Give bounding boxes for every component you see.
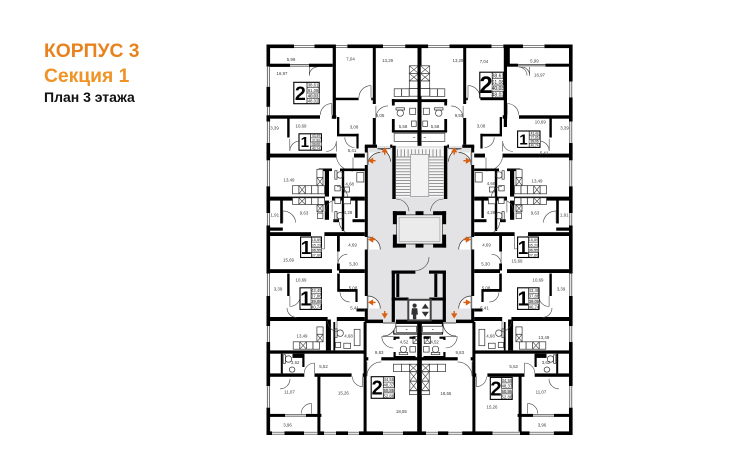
svg-text:1: 1 [518, 238, 529, 259]
svg-text:4,52: 4,52 [400, 339, 409, 344]
svg-text:10,69: 10,69 [533, 278, 545, 283]
svg-text:15,69: 15,69 [512, 259, 524, 264]
svg-text:15,26: 15,26 [338, 391, 350, 396]
svg-text:9,63: 9,63 [300, 211, 309, 216]
svg-text:10,69: 10,69 [535, 120, 547, 125]
svg-text:61,08: 61,08 [308, 88, 319, 93]
svg-text:9,63: 9,63 [531, 211, 540, 216]
svg-text:3,39: 3,39 [557, 287, 566, 292]
svg-text:13,49: 13,49 [284, 178, 296, 183]
svg-text:43,49: 43,49 [311, 288, 322, 293]
svg-text:37,60: 37,60 [528, 253, 539, 258]
svg-text:3,08: 3,08 [350, 125, 359, 130]
svg-text:39,06: 39,06 [529, 299, 540, 304]
svg-text:5,30: 5,30 [349, 262, 358, 267]
svg-text:1,91: 1,91 [560, 213, 569, 218]
svg-text:2: 2 [490, 378, 501, 400]
svg-text:5,99: 5,99 [530, 59, 539, 64]
svg-text:5,99: 5,99 [287, 57, 296, 62]
svg-text:40,74: 40,74 [531, 144, 539, 148]
svg-text:43,49: 43,49 [529, 288, 540, 293]
svg-text:9,55: 9,55 [455, 113, 464, 118]
svg-text:1: 1 [301, 134, 309, 151]
svg-text:7,04: 7,04 [346, 57, 355, 62]
svg-text:48,02: 48,02 [308, 99, 319, 104]
svg-text:50,86: 50,86 [384, 388, 395, 393]
svg-text:50,86: 50,86 [502, 389, 513, 394]
svg-text:37,60: 37,60 [311, 253, 322, 258]
svg-text:5,58: 5,58 [399, 124, 408, 129]
svg-text:13,49: 13,49 [532, 179, 544, 184]
svg-text:3,08: 3,08 [477, 124, 486, 129]
svg-text:40,03: 40,03 [492, 86, 505, 92]
svg-text:5,30: 5,30 [481, 262, 490, 267]
svg-text:37,86: 37,86 [529, 294, 540, 299]
svg-text:16,97: 16,97 [277, 71, 289, 76]
svg-text:13,49: 13,49 [297, 334, 309, 339]
svg-text:11,07: 11,07 [536, 390, 547, 395]
svg-text:3,62: 3,62 [291, 360, 300, 365]
svg-text:1: 1 [518, 289, 529, 311]
svg-text:2: 2 [372, 377, 383, 399]
svg-text:3,96: 3,96 [283, 423, 292, 428]
svg-text:4,28: 4,28 [344, 210, 353, 215]
svg-text:18,55: 18,55 [396, 409, 408, 414]
svg-text:10,69: 10,69 [296, 124, 308, 129]
svg-text:5,52: 5,52 [509, 364, 518, 369]
svg-text:1: 1 [301, 238, 312, 259]
svg-text:37,86: 37,86 [311, 294, 322, 299]
svg-text:КОРПУС 3: КОРПУС 3 [44, 41, 140, 62]
svg-text:4,28: 4,28 [487, 210, 496, 215]
svg-text:5,41: 5,41 [480, 306, 489, 311]
svg-text:3,39: 3,39 [270, 126, 279, 131]
svg-text:39,06: 39,06 [311, 299, 322, 304]
svg-text:48,37: 48,37 [384, 383, 395, 388]
svg-text:2: 2 [479, 73, 492, 99]
svg-text:15,26: 15,26 [487, 405, 499, 410]
svg-text:4,52: 4,52 [430, 339, 439, 344]
svg-text:4,68: 4,68 [345, 182, 354, 187]
svg-text:7,04: 7,04 [480, 59, 489, 64]
svg-text:13,49: 13,49 [538, 335, 550, 340]
svg-text:11,07: 11,07 [284, 390, 295, 395]
svg-text:4,68: 4,68 [487, 181, 496, 186]
svg-text:5,41: 5,41 [540, 151, 549, 156]
svg-text:38,61: 38,61 [492, 73, 505, 79]
svg-text:3,39: 3,39 [274, 287, 283, 292]
svg-text:1,91: 1,91 [271, 213, 280, 218]
svg-text:5,52: 5,52 [319, 364, 328, 369]
svg-text:9,05: 9,05 [376, 113, 385, 118]
svg-text:34,55: 34,55 [502, 378, 513, 383]
svg-text:40,74: 40,74 [312, 147, 320, 151]
svg-text:38,61: 38,61 [308, 83, 319, 88]
svg-text:5,41: 5,41 [350, 306, 359, 311]
svg-text:5,41: 5,41 [348, 148, 357, 153]
svg-text:3,39: 3,39 [560, 126, 569, 131]
svg-text:40,74: 40,74 [529, 304, 540, 309]
svg-text:40,03: 40,03 [308, 93, 319, 98]
svg-text:План 3 этажа: План 3 этажа [44, 89, 135, 105]
svg-text:4,68: 4,68 [344, 334, 353, 339]
svg-text:34,55: 34,55 [384, 377, 395, 382]
svg-text:2: 2 [295, 83, 306, 105]
svg-text:40,74: 40,74 [311, 304, 322, 309]
svg-text:4,69: 4,69 [482, 243, 491, 248]
svg-text:10,69: 10,69 [296, 278, 308, 283]
svg-text:5,08: 5,08 [349, 286, 358, 291]
svg-text:Секция 1: Секция 1 [44, 66, 130, 87]
svg-text:13,29: 13,29 [453, 58, 465, 63]
svg-text:4,69: 4,69 [348, 243, 357, 248]
svg-text:9,83: 9,83 [375, 350, 384, 355]
svg-text:3,62: 3,62 [542, 360, 551, 365]
svg-text:48,02: 48,02 [492, 93, 505, 99]
svg-text:61,08: 61,08 [492, 80, 505, 86]
svg-text:16,97: 16,97 [534, 73, 546, 78]
svg-text:5,58: 5,58 [431, 124, 440, 129]
svg-text:5,08: 5,08 [482, 286, 491, 291]
svg-text:1: 1 [300, 289, 311, 311]
svg-text:52,88: 52,88 [502, 394, 513, 399]
svg-text:1: 1 [519, 131, 527, 148]
svg-text:13,29: 13,29 [382, 58, 394, 63]
svg-text:3,96: 3,96 [538, 423, 547, 428]
svg-text:9,83: 9,83 [456, 350, 465, 355]
svg-text:15,69: 15,69 [283, 258, 295, 263]
svg-text:18,55: 18,55 [440, 391, 452, 396]
svg-text:4,68: 4,68 [486, 334, 495, 339]
svg-text:52,88: 52,88 [384, 393, 395, 398]
svg-text:48,37: 48,37 [502, 383, 513, 388]
